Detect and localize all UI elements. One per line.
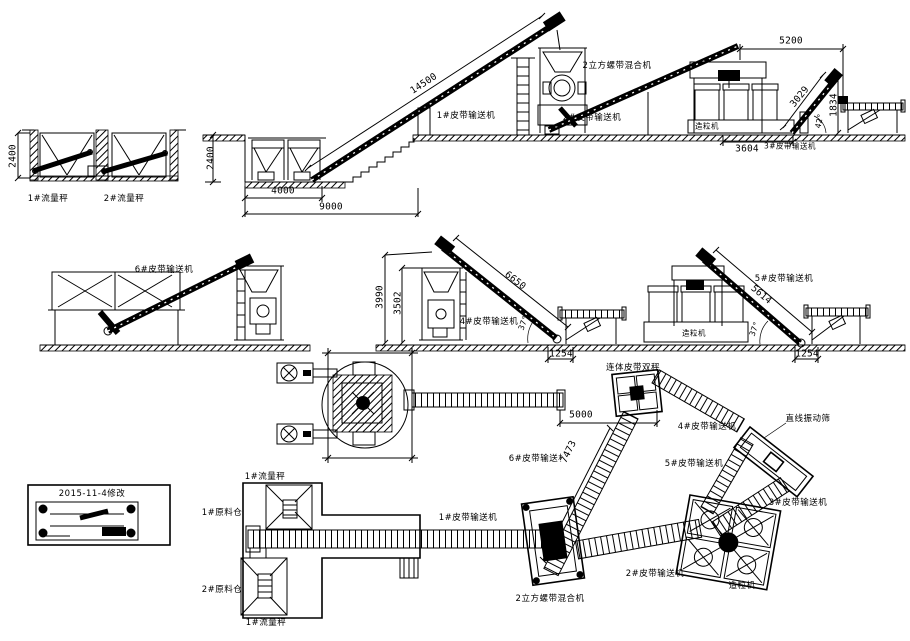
drawing-artwork xyxy=(0,0,910,641)
plan-bottom-area xyxy=(241,483,781,618)
label-conveyor-2-elevation: 2#皮带输送机 xyxy=(563,114,622,123)
plan-hopper-2 xyxy=(241,558,287,615)
plan-double-belt-scale xyxy=(612,370,662,417)
vibrating-screen-elevation-2 xyxy=(558,307,626,344)
vibrating-screen-elevation-3 xyxy=(804,305,870,344)
dim-3604-text: 3604 xyxy=(735,144,759,154)
label-mixer-plan: 2立方螺带混合机 xyxy=(516,595,585,604)
label-granulator-plan: 造粒机 xyxy=(728,582,755,591)
label-conveyor-5-plan: 5#皮带输送机 xyxy=(665,460,724,469)
label-flow-scale-1: 1#流量秤 xyxy=(28,195,69,204)
dim-1834-text: 1834 xyxy=(829,93,839,117)
label-conveyor-1-elevation: 1#皮带输送机 xyxy=(437,112,496,121)
label-flow-scale-top-plan: 1#流量秤 xyxy=(245,473,286,482)
label-flow-scale-2: 2#流量秤 xyxy=(104,195,145,204)
belt-conveyor-4-elevation xyxy=(434,236,561,343)
vibrating-screen-elevation-1 xyxy=(838,96,905,133)
dim-2400-left-text: 2400 xyxy=(8,144,18,168)
cad-drawing-sheet: 2400 1#流量秤 2#流量秤 2400 14500 1#皮带输送机 4000… xyxy=(0,0,910,641)
revision-note: 2015-11-4修改 xyxy=(59,490,126,499)
label-flow-scale-bottom-plan: 1#流量秤 xyxy=(246,619,287,628)
view-flow-scales-elevation xyxy=(15,130,186,181)
angle-arc-37b xyxy=(760,321,768,344)
label-conveyor-5-elevation: 5#皮带输送机 xyxy=(755,275,814,284)
view-tower4-elevation xyxy=(376,235,905,363)
bagging-tower-1 xyxy=(234,266,284,340)
tilted-weigh-belt-2 xyxy=(102,151,168,174)
dim-3990-text: 3990 xyxy=(375,285,385,309)
label-mixer-elevation: 2立方螺带混合机 xyxy=(583,62,652,71)
tilted-weigh-belt-1 xyxy=(33,150,93,174)
label-granulator-elevation-1: 造粒机 xyxy=(695,122,719,130)
label-double-belt-scale: 连体皮带双秤 xyxy=(606,364,660,373)
bagging-tower-2 xyxy=(419,268,466,340)
label-conveyor-3-elevation: 3#皮带输送机 xyxy=(764,142,816,150)
dim-5200-text: 5200 xyxy=(779,36,803,46)
pit-hopper-1 xyxy=(252,140,284,180)
pit-hopper-2 xyxy=(288,140,320,180)
dim-3502-text: 3502 xyxy=(393,291,403,315)
dim-14500 xyxy=(305,13,545,171)
label-conveyor-3-plan: 3#皮带输送机 xyxy=(769,499,828,508)
plan-granulator xyxy=(676,495,780,590)
plan-mixer-area xyxy=(277,348,418,463)
label-raw-bin-2: 2#原料仓 xyxy=(202,586,243,595)
dim-5000-text: 5000 xyxy=(568,410,594,420)
label-raw-bin-1: 1#原料仓 xyxy=(202,509,243,518)
plan-hopper-1 xyxy=(266,485,312,529)
label-conveyor-6-elevation: 6#皮带输送机 xyxy=(135,266,194,275)
label-linear-screen-plan: 直线振动筛 xyxy=(785,415,830,424)
label-conveyor-4-plan: 4#皮带输送机 xyxy=(678,423,737,432)
plan-belt-1 xyxy=(246,526,544,558)
dim-9000-text: 9000 xyxy=(319,202,343,212)
belt-conveyor-1-elevation xyxy=(312,11,566,180)
dim-3990 xyxy=(382,252,432,346)
label-conveyor-4-elevation: 4#皮带输送机 xyxy=(460,318,519,327)
dim-1254-mid-text: 1254 xyxy=(549,349,573,359)
label-conveyor-1-plan: 1#皮带输送机 xyxy=(439,514,498,523)
dim-4000-text: 4000 xyxy=(271,186,295,196)
label-granulator-elevation-2: 造粒机 xyxy=(680,329,708,337)
dim-2400-pit-text: 2400 xyxy=(206,146,216,170)
label-conveyor-2-plan: 2#皮带输送机 xyxy=(626,570,685,579)
dim-1254-right-text: 1254 xyxy=(795,349,819,359)
